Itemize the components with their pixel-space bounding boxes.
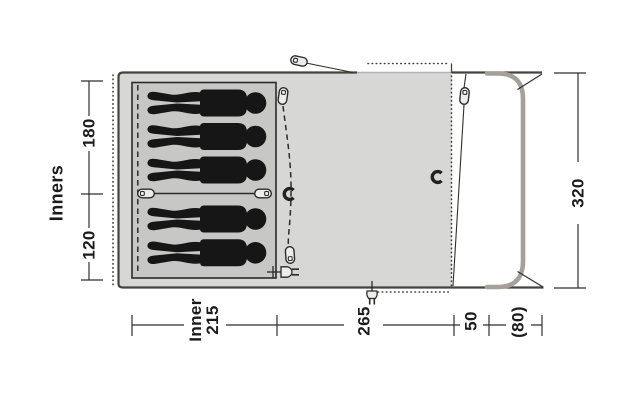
zip-pull-icon: [285, 246, 295, 263]
inner-depth-bottom-label: 120: [81, 230, 98, 260]
door-tieback-line: [453, 105, 464, 286]
guy-line-bottom: [518, 272, 544, 288]
living-width-label: 265: [356, 306, 373, 336]
inner-depth-top-label: 180: [81, 118, 98, 148]
zip-cord-line: [306, 63, 353, 73]
zip-pull-icon: [138, 189, 155, 198]
zip-pull-icon: [459, 87, 469, 104]
front-door-frame: [487, 74, 543, 288]
door-tieback-line-short: [464, 74, 466, 88]
total-depth-label: 320: [570, 178, 587, 208]
floorplan-drawing: [0, 0, 640, 400]
inner-width-label: Inner 215: [187, 298, 221, 342]
power-socket-icon: [367, 291, 377, 299]
zip-pull-icon: [290, 55, 308, 67]
front-width-label: 50: [463, 311, 480, 331]
canopy-width-label: (80): [510, 306, 527, 338]
zip-pull-icon: [255, 189, 272, 198]
inners-group-label: Inners: [49, 165, 66, 221]
tent-floorplan: Inners 180 120 320 Inner 215 265 50 (80): [0, 0, 640, 400]
power-socket-icon: [281, 267, 292, 277]
zip-pull-icon: [278, 87, 289, 105]
